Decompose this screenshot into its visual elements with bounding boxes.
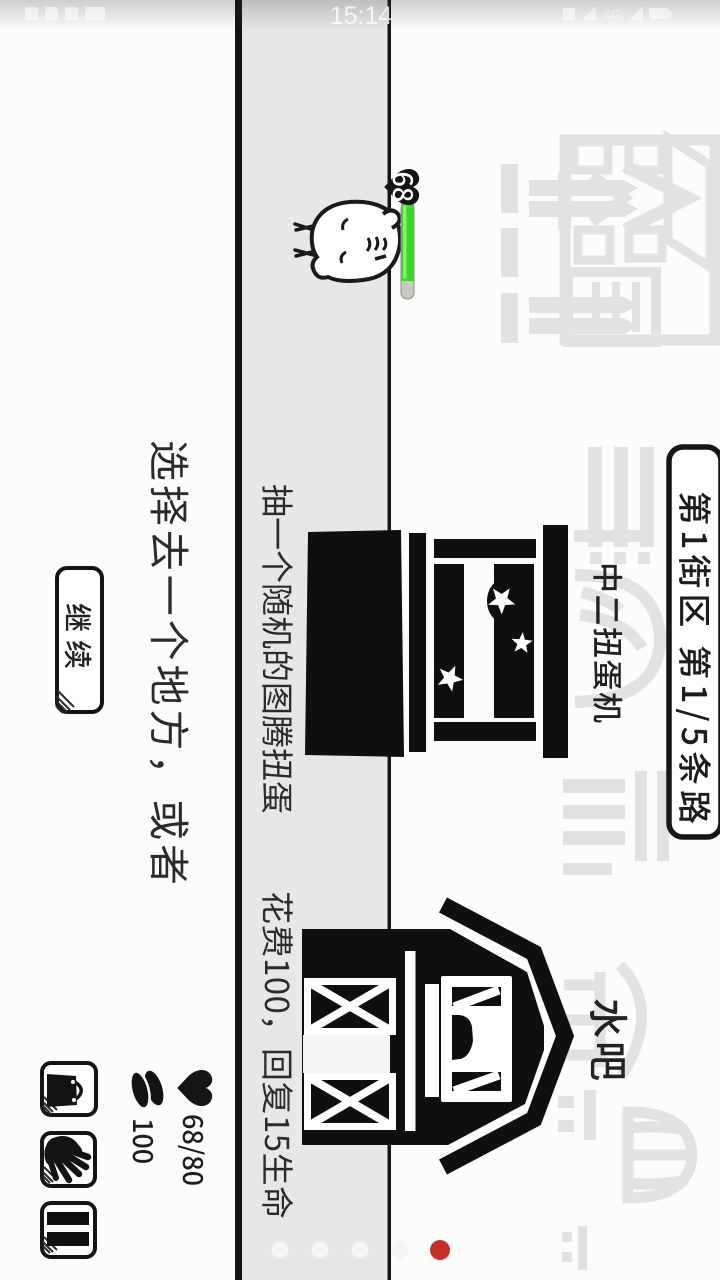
svg-text:4G: 4G bbox=[604, 7, 621, 22]
svg-text:15:14: 15:14 bbox=[330, 2, 393, 30]
